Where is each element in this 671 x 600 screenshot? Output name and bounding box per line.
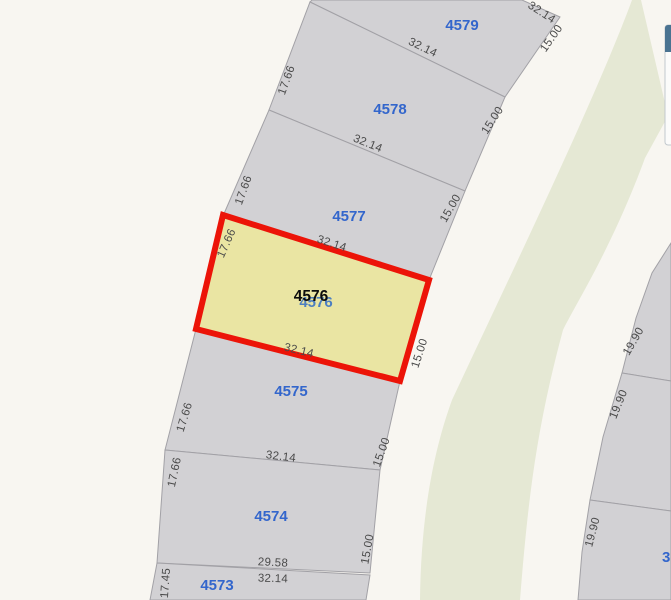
dimension-label: 32.14 bbox=[258, 572, 289, 585]
map-viewport[interactable]: 32.1415.0032.1417.6632.1415.0017.6632.14… bbox=[0, 0, 671, 600]
lot-label-partial: 3 bbox=[662, 549, 670, 566]
parcel-map[interactable]: 32.1415.0032.1417.6632.1415.0017.6632.14… bbox=[0, 0, 671, 600]
dimension-label: 17.45 bbox=[159, 568, 173, 599]
parcel-right-lot-3[interactable] bbox=[578, 500, 671, 600]
lot-label-4578: 4578 bbox=[373, 101, 406, 118]
lot-label-4575: 4575 bbox=[274, 383, 307, 400]
lot-label-4579: 4579 bbox=[445, 17, 478, 34]
lot-label-4577: 4577 bbox=[332, 208, 365, 225]
edge-panel-header[interactable] bbox=[665, 25, 671, 52]
selected-lot-label-4576: 4576 bbox=[294, 288, 329, 305]
lot-label-4573: 4573 bbox=[200, 577, 233, 594]
lot-label-4574: 4574 bbox=[254, 508, 288, 525]
dimension-label: 29.58 bbox=[258, 556, 289, 570]
